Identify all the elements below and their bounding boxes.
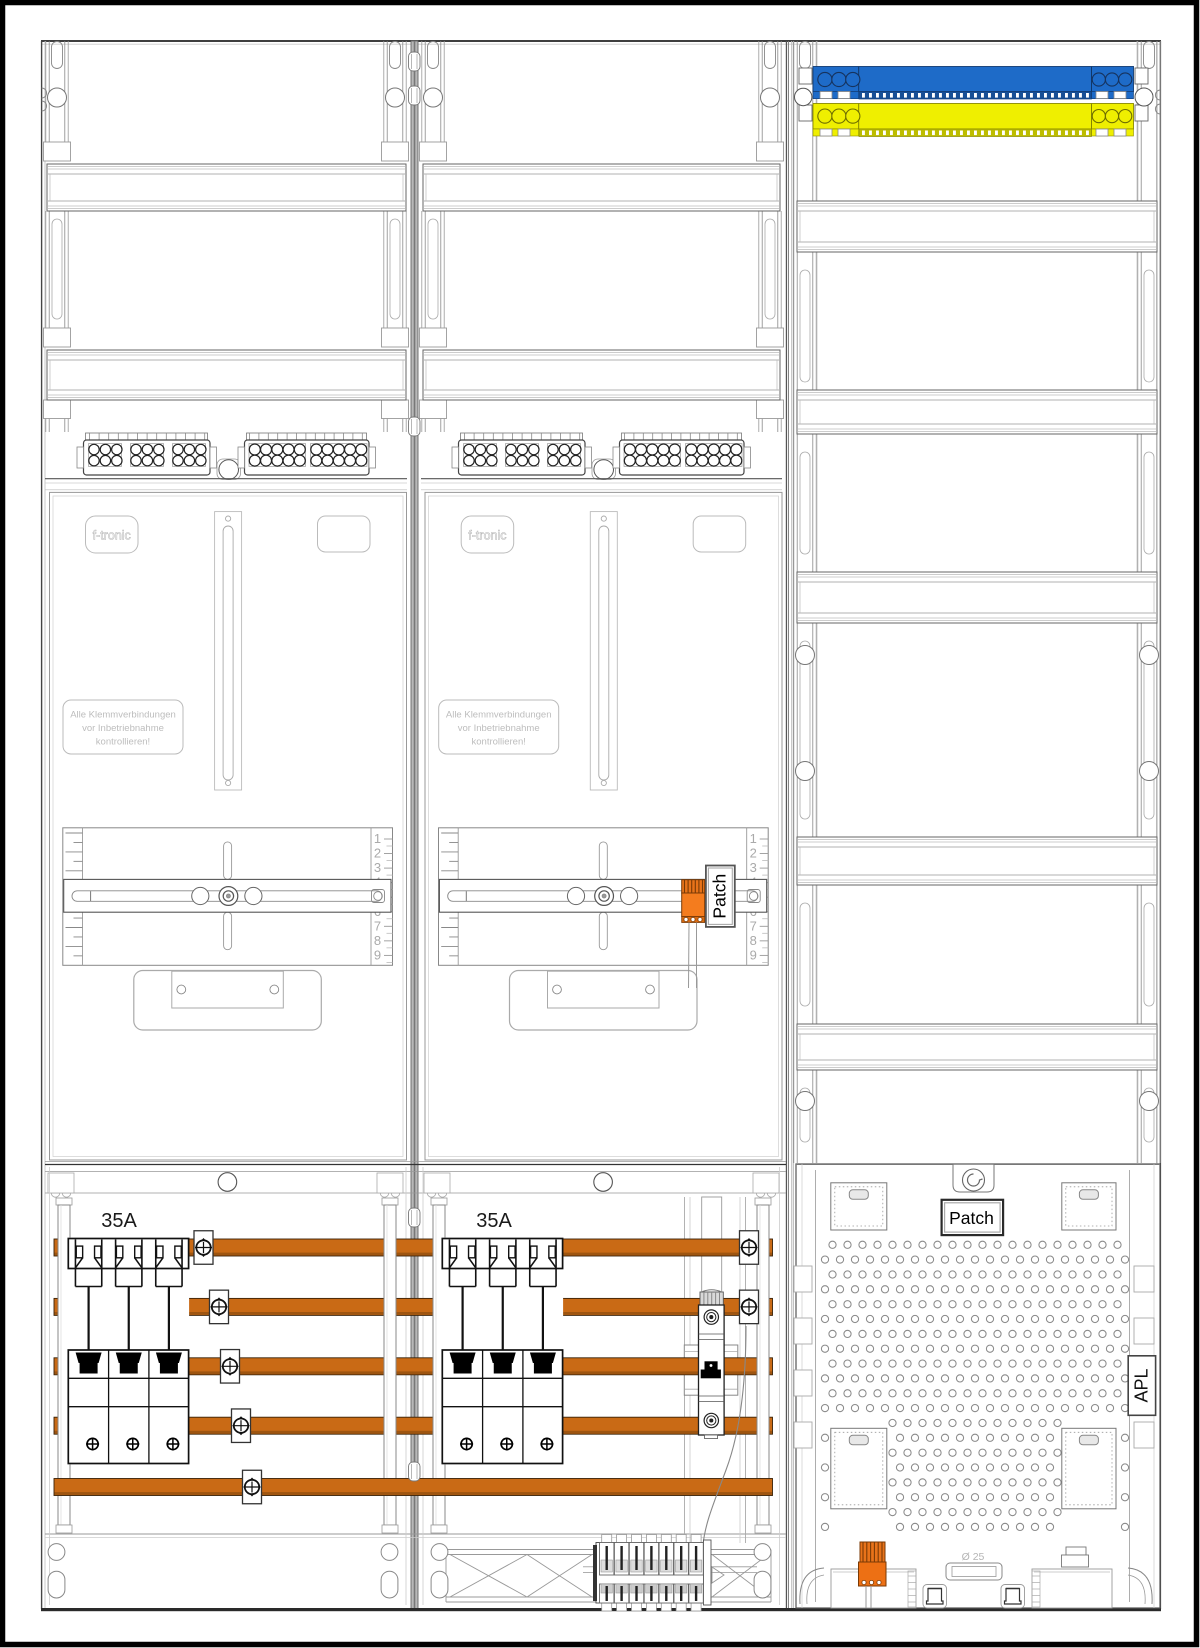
svg-text:1: 1	[750, 831, 757, 846]
svg-text:f-tronic: f-tronic	[468, 529, 506, 543]
svg-text:Alle Klemmverbindungen: Alle Klemmverbindungen	[70, 710, 176, 721]
svg-text:8: 8	[374, 933, 381, 948]
svg-text:9: 9	[750, 947, 757, 962]
svg-text:kontrollieren!: kontrollieren!	[472, 737, 526, 748]
svg-text:kontrollieren!: kontrollieren!	[96, 737, 150, 748]
svg-text:3: 3	[374, 860, 381, 875]
svg-text:3: 3	[750, 860, 757, 875]
svg-text:Ø 25: Ø 25	[962, 1551, 985, 1563]
svg-text:2: 2	[374, 846, 381, 861]
svg-text:8: 8	[750, 933, 757, 948]
svg-text:vor Inbetriebnahme: vor Inbetriebnahme	[82, 723, 164, 734]
svg-text:2: 2	[750, 846, 757, 861]
svg-text:f-tronic: f-tronic	[93, 529, 131, 543]
svg-text:35A: 35A	[101, 1210, 137, 1232]
svg-text:APL: APL	[1132, 1368, 1152, 1402]
svg-text:Patch: Patch	[710, 874, 730, 919]
svg-text:7: 7	[750, 918, 757, 933]
svg-text:Patch: Patch	[949, 1208, 994, 1228]
svg-text:Alle Klemmverbindungen: Alle Klemmverbindungen	[446, 710, 552, 721]
svg-text:9: 9	[374, 947, 381, 962]
svg-text:7: 7	[374, 918, 381, 933]
svg-text:35A: 35A	[476, 1210, 512, 1232]
svg-text:1: 1	[374, 831, 381, 846]
svg-text:vor Inbetriebnahme: vor Inbetriebnahme	[458, 723, 540, 734]
